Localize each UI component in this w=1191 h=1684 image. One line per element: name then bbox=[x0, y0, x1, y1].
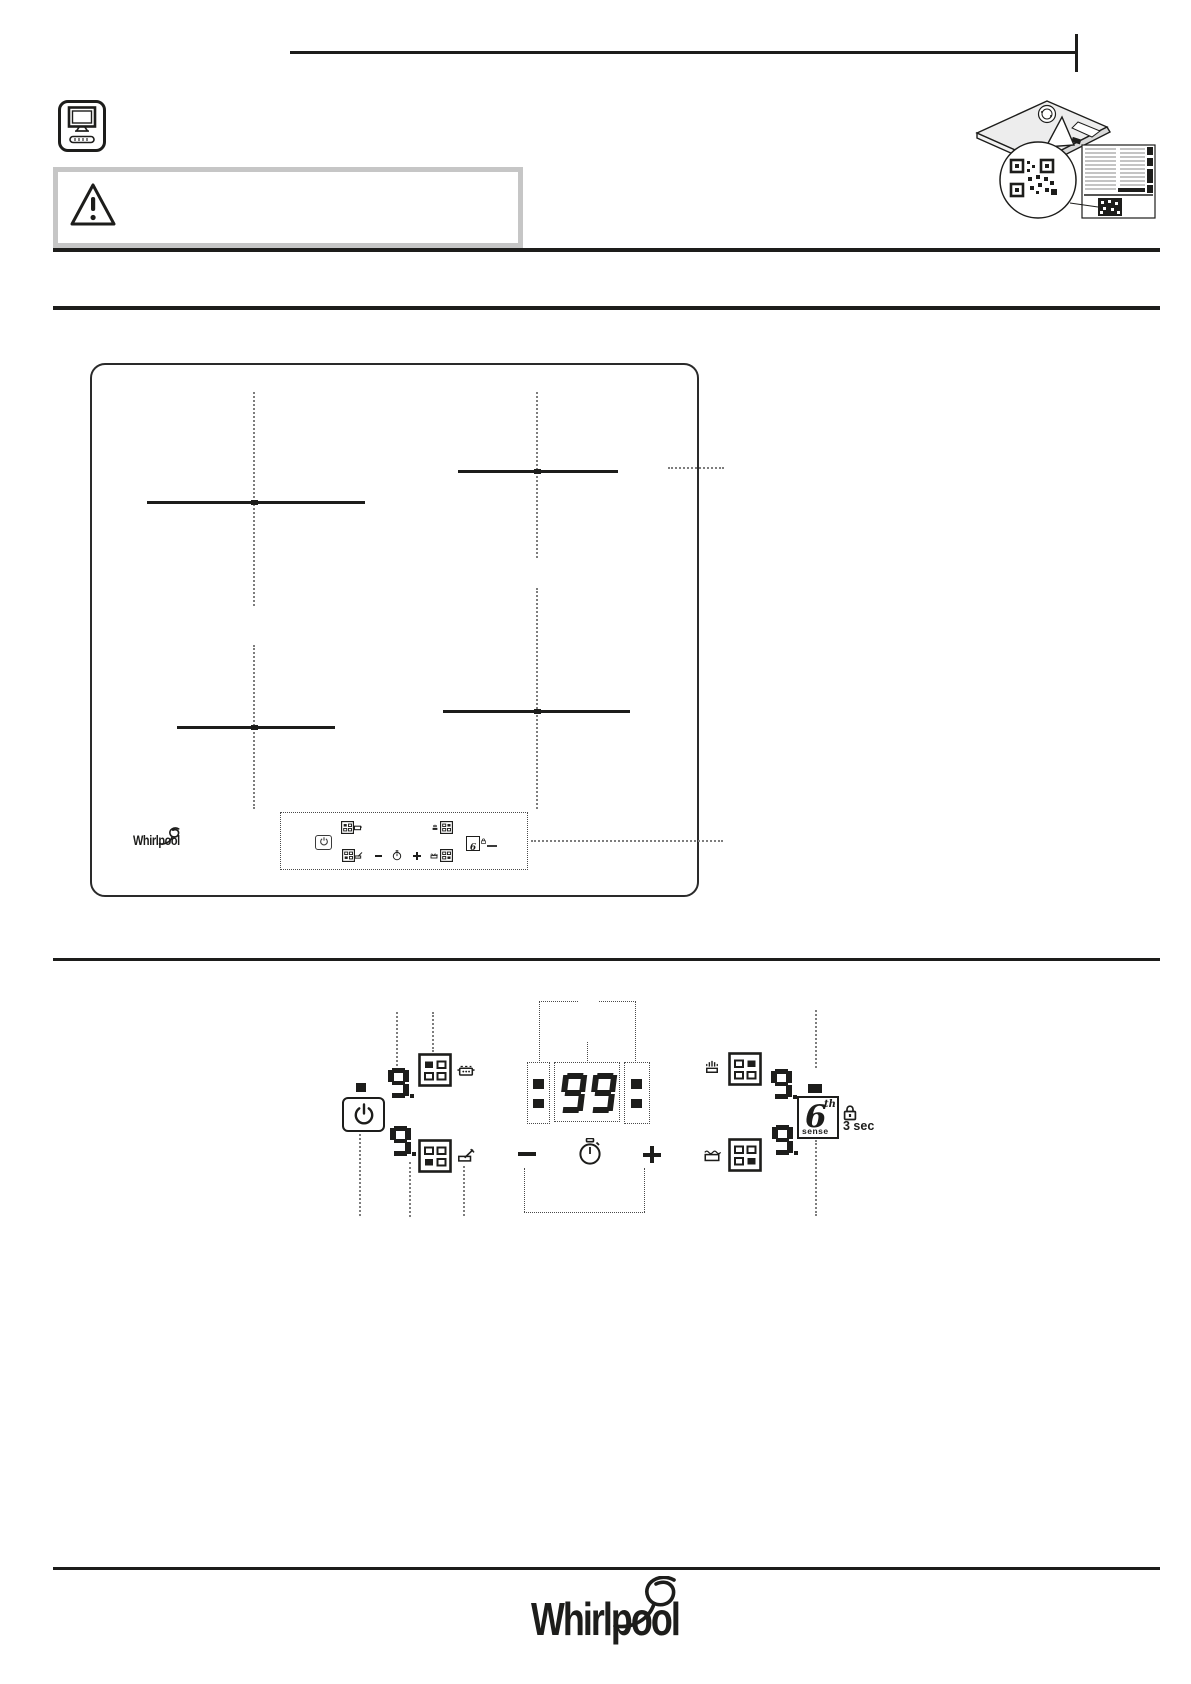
timer-icon-mini bbox=[392, 850, 402, 861]
simmer-icon bbox=[703, 1149, 721, 1162]
zone-front-left-center bbox=[251, 725, 258, 730]
zone-callout-line bbox=[668, 467, 724, 469]
power-button-mini bbox=[315, 835, 332, 850]
timer-bracket-left bbox=[524, 1168, 525, 1212]
zone-rear-left-axis bbox=[253, 392, 255, 606]
lock-label-mini bbox=[487, 845, 497, 847]
timer-right-indicator-box bbox=[624, 1062, 650, 1124]
lock-duration-label: 3 sec bbox=[843, 1119, 874, 1133]
warning-box bbox=[53, 167, 523, 248]
steam-icon bbox=[703, 1060, 721, 1074]
header-rule-tick bbox=[1075, 34, 1078, 72]
footer-logo: Whirlpool bbox=[531, 1586, 731, 1656]
separator-rule-2 bbox=[53, 306, 1160, 310]
leader-melt bbox=[463, 1166, 465, 1216]
power-icon bbox=[352, 1102, 376, 1126]
zone-selector-zone2 bbox=[418, 1139, 452, 1173]
leader-display-zone2 bbox=[409, 1162, 411, 1217]
timer-callout-left bbox=[539, 1001, 540, 1061]
monitor-icon-glyph bbox=[61, 103, 103, 149]
leader-power bbox=[359, 1134, 361, 1216]
rating-plate-qr-icon bbox=[1098, 198, 1122, 216]
leader-selector-zone1 bbox=[432, 1012, 434, 1052]
seven-seg-display-zone3 bbox=[771, 1069, 792, 1099]
simmer-icon-mini bbox=[430, 853, 438, 859]
separator-rule-3 bbox=[53, 958, 1160, 961]
zone-rear-right-axis bbox=[536, 392, 538, 558]
warning-triangle-icon bbox=[68, 180, 118, 232]
zone-selector-mini-rear-right bbox=[440, 821, 453, 834]
footer-logo-swoosh bbox=[558, 1576, 718, 1640]
minus-button bbox=[518, 1152, 536, 1156]
separator-rule-1 bbox=[53, 248, 1160, 252]
roast-icon-mini bbox=[353, 824, 362, 831]
zone-front-right-center bbox=[534, 709, 541, 714]
timer-display bbox=[559, 1073, 618, 1113]
sixth-sense-word: sense bbox=[802, 1126, 829, 1136]
zone-front-right-axis bbox=[536, 588, 538, 809]
separator-rule-4 bbox=[53, 1567, 1160, 1570]
header-rule bbox=[290, 51, 1077, 54]
timer-callout-tick bbox=[587, 1042, 588, 1061]
manual-page: Whirlpool bbox=[0, 0, 1191, 1684]
zone-selector-zone3 bbox=[728, 1052, 762, 1086]
zone-selector-zone1 bbox=[418, 1053, 452, 1087]
melt-icon-mini bbox=[354, 852, 363, 859]
leader-sixth-sense-bottom bbox=[815, 1140, 817, 1216]
roast-icon bbox=[457, 1063, 475, 1078]
timer-left-indicator-box bbox=[527, 1062, 550, 1124]
sixth-sense-mini-digit: 6 bbox=[470, 843, 476, 853]
monitor-icon bbox=[58, 100, 106, 152]
leader-sixth-sense-top bbox=[815, 1010, 817, 1068]
timer-callout-top-a bbox=[539, 1001, 578, 1002]
zone-selector-mini-front-right bbox=[440, 849, 453, 862]
plus-button-mini bbox=[413, 852, 421, 860]
timer-bracket-right bbox=[644, 1168, 645, 1212]
sixth-sense-sup: th bbox=[824, 1099, 836, 1110]
cooktop-logo-swoosh bbox=[141, 827, 193, 849]
timer-callout-top-b bbox=[599, 1001, 636, 1002]
cooktop-logo: Whirlpool bbox=[133, 830, 203, 852]
power-button bbox=[342, 1097, 385, 1132]
sixth-sense-indicator-square bbox=[808, 1084, 822, 1093]
melt-icon bbox=[457, 1148, 475, 1163]
steam-icon-mini bbox=[431, 824, 439, 831]
minus-button-mini bbox=[375, 855, 382, 857]
seven-seg-display-zone2 bbox=[390, 1126, 411, 1156]
zone-selector-zone4 bbox=[728, 1138, 762, 1172]
zone-rear-right-center bbox=[534, 469, 541, 474]
timer-icon bbox=[577, 1138, 603, 1166]
leader-display-zone1 bbox=[396, 1012, 398, 1066]
plus-button bbox=[643, 1146, 661, 1163]
zone-rear-left-center bbox=[251, 500, 258, 505]
rating-plate bbox=[1070, 145, 1155, 218]
timer-callout-right bbox=[635, 1001, 636, 1061]
magnifier-circle bbox=[1000, 142, 1076, 218]
sixth-sense-logo: 6 th sense bbox=[797, 1096, 839, 1139]
power-indicator-square bbox=[356, 1083, 366, 1092]
seven-seg-display-zone4 bbox=[772, 1125, 793, 1155]
timer-bracket-bottom bbox=[524, 1212, 645, 1213]
hob-qr-illustration bbox=[950, 85, 1165, 225]
lock-icon-mini bbox=[481, 838, 486, 844]
panel-callout-line bbox=[531, 840, 723, 842]
seven-seg-display-zone1 bbox=[388, 1068, 409, 1098]
sixth-sense-logo-mini: 6 bbox=[466, 836, 480, 851]
